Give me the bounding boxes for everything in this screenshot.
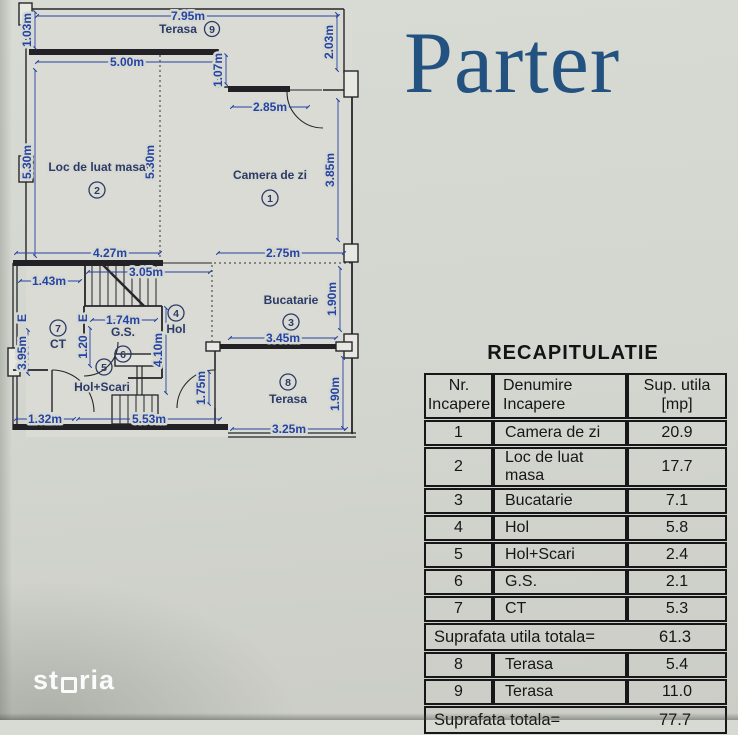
total-row: Suprafata totala= 77.7 — [424, 706, 727, 734]
table-row: 9 Terasa 11.0 — [424, 679, 727, 705]
cell-denumire: CT — [493, 596, 627, 622]
cell-nr: 3 — [424, 488, 493, 514]
subtotal-label: Suprafata utila totala= — [426, 628, 595, 647]
room-name-camera-de-zi: Camera de zi — [233, 168, 307, 182]
subtotal-value: 61.3 — [625, 628, 725, 647]
cell-nr: 4 — [424, 515, 493, 541]
dim-label: 5.53m — [132, 412, 166, 426]
table-row: 2 Loc de luat masa 17.7 — [424, 447, 727, 487]
dim-label: 5.00m — [110, 55, 144, 69]
room-name-hol: Hol — [166, 322, 185, 336]
dim-label: 1.03m — [20, 13, 34, 47]
cell-nr: 8 — [424, 652, 493, 678]
header-nr-incapere: Nr. Incapere — [424, 373, 493, 419]
cell-denumire: Bucatarie — [493, 488, 627, 514]
dim-label: 1.43m — [32, 274, 66, 288]
cell-suprafata: 7.1 — [627, 488, 727, 514]
cell-suprafata: 11.0 — [627, 679, 727, 705]
cell-suprafata: 5.4 — [627, 652, 727, 678]
subtotal-row: Suprafata utila totala= 61.3 — [424, 623, 727, 651]
dim-label: 2.85m — [253, 100, 287, 114]
room-number-1: 1 — [267, 193, 273, 205]
dim-label: 2.75m — [266, 246, 300, 260]
floor-plan: 7.95m 1.03m 5.00m 1.07m 2.85m 2.03m 5.30… — [0, 0, 380, 450]
cell-suprafata: 5.3 — [627, 596, 727, 622]
room-name-terasa8: Terasa — [269, 392, 307, 406]
total-cell: Suprafata totala= 77.7 — [424, 706, 727, 734]
dim-label: 3.05m — [129, 265, 163, 279]
dim-label: 2.03m — [322, 25, 336, 59]
recap-table: Nr. Incapere Denumire Incapere Sup. util… — [424, 372, 727, 735]
cell-denumire: Terasa — [493, 679, 627, 705]
table-header-row: Nr. Incapere Denumire Incapere Sup. util… — [424, 373, 727, 419]
cell-suprafata: 17.7 — [627, 447, 727, 487]
cell-denumire: Terasa — [493, 652, 627, 678]
photo-corner-shadow — [0, 580, 300, 720]
dim-label: 3.45m — [266, 331, 300, 345]
table-row: 5 Hol+Scari 2.4 — [424, 542, 727, 568]
room-name-loc-de-luat-masa: Loc de luat masa — [48, 160, 146, 174]
table-row: 6 G.S. 2.1 — [424, 569, 727, 595]
dim-label: 3.85m — [323, 153, 337, 187]
cell-suprafata: 20.9 — [627, 420, 727, 446]
recap-section: RECAPITULATIE Nr. Incapere Denumire Inca… — [424, 342, 722, 735]
dim-label: E — [76, 314, 90, 322]
cell-nr: 5 — [424, 542, 493, 568]
table-row: 8 Terasa 5.4 — [424, 652, 727, 678]
cell-nr: 1 — [424, 420, 493, 446]
cell-suprafata: 2.4 — [627, 542, 727, 568]
header-denumire-incapere: Denumire Incapere — [493, 373, 627, 419]
recap-title: RECAPITULATIE — [424, 342, 722, 365]
plan-interior — [26, 9, 352, 437]
watermark-text-pre: st — [33, 665, 59, 696]
dim-label: 4.10m — [151, 333, 165, 367]
room-number-7: 7 — [55, 323, 61, 335]
cell-nr: 6 — [424, 569, 493, 595]
room-name-bucatarie: Bucatarie — [264, 293, 319, 307]
dim-label: 1.32m — [28, 412, 62, 426]
cell-denumire: Camera de zi — [493, 420, 627, 446]
cell-suprafata: 5.8 — [627, 515, 727, 541]
dim-label: E — [15, 314, 29, 322]
room-name-hol-scari: Hol+Scari — [74, 380, 130, 394]
cell-suprafata: 2.1 — [627, 569, 727, 595]
room-number-3: 3 — [288, 317, 294, 329]
dim-label: 5.30m — [20, 145, 34, 179]
room-number-8: 8 — [285, 377, 291, 389]
table-row: 1 Camera de zi 20.9 — [424, 420, 727, 446]
table-row: 4 Hol 5.8 — [424, 515, 727, 541]
dim-label: 3.95m — [15, 336, 29, 370]
room-number-2: 2 — [94, 185, 100, 197]
dim-label: 1.75m — [194, 371, 208, 405]
room-name-terasa9: Terasa — [159, 22, 197, 36]
room-name-gs: G.S. — [111, 325, 135, 339]
watermark-text-post: ria — [79, 665, 115, 696]
dim-label: 7.95m — [171, 9, 205, 23]
cell-denumire: Hol — [493, 515, 627, 541]
cell-denumire: Hol+Scari — [493, 542, 627, 568]
room-name-ct: CT — [50, 337, 67, 351]
storia-watermark: st ria — [33, 665, 115, 696]
room-number-5: 5 — [101, 362, 107, 374]
photo-edge-shade-bottom — [0, 713, 738, 720]
room-number-6: 6 — [120, 349, 126, 361]
room-number-9: 9 — [209, 24, 215, 36]
dim-label: 1.07m — [211, 53, 225, 87]
dim-label: 4.27m — [93, 246, 127, 260]
dim-label: 1.20 — [76, 335, 90, 359]
room-number-4: 4 — [173, 308, 179, 320]
dim-label: 3.25m — [272, 422, 306, 436]
cell-nr: 7 — [424, 596, 493, 622]
dim-label: 1.90m — [325, 282, 339, 316]
storia-square-o-icon — [61, 677, 77, 693]
subtotal-cell: Suprafata utila totala= 61.3 — [424, 623, 727, 651]
cell-denumire: G.S. — [493, 569, 627, 595]
page-title: Parter — [404, 20, 620, 108]
table-row: 3 Bucatarie 7.1 — [424, 488, 727, 514]
cell-nr: 9 — [424, 679, 493, 705]
cell-nr: 2 — [424, 447, 493, 487]
header-sup-utila: Sup. utila [mp] — [627, 373, 727, 419]
table-row: 7 CT 5.3 — [424, 596, 727, 622]
dim-label: 1.90m — [328, 377, 342, 411]
cell-denumire: Loc de luat masa — [493, 447, 627, 487]
